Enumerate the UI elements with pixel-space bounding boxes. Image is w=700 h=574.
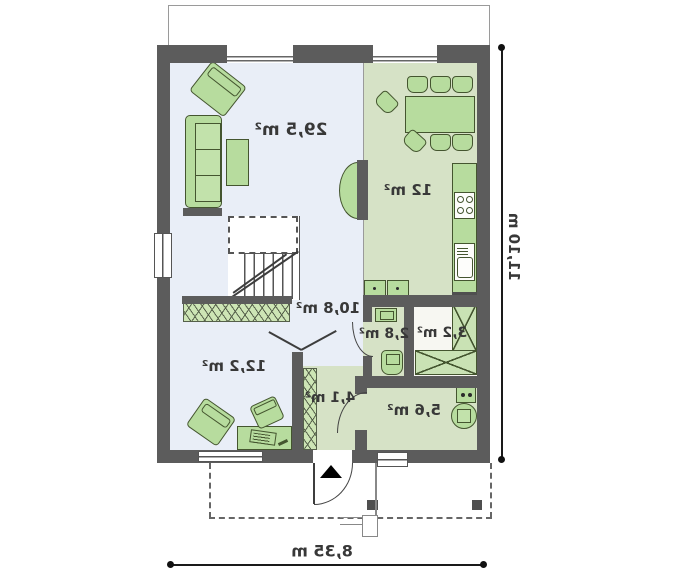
chair-symbol bbox=[430, 134, 451, 151]
glass-door bbox=[373, 46, 437, 62]
window bbox=[198, 451, 263, 462]
wall bbox=[182, 296, 292, 304]
sofa-cushion bbox=[195, 149, 221, 176]
wardrobe-hall bbox=[183, 303, 290, 322]
room-label-entry: 4,1 m² bbox=[305, 390, 355, 406]
wall bbox=[363, 295, 477, 307]
stair-treads bbox=[244, 253, 298, 299]
room-label-utility: 5,6 m² bbox=[387, 401, 441, 419]
room-label-hall: 10,8 m² bbox=[296, 299, 360, 317]
desk-symbol bbox=[237, 426, 292, 450]
room-label-pantry: 3,2 m² bbox=[417, 325, 467, 341]
room-label-living: 29,5 m² bbox=[254, 120, 327, 140]
eaves-dashed-line bbox=[209, 463, 211, 518]
porch-post bbox=[472, 500, 482, 510]
window bbox=[154, 233, 172, 278]
wall bbox=[292, 352, 303, 463]
porch-step bbox=[362, 515, 378, 537]
room-label-office: 12,2 m² bbox=[202, 357, 266, 375]
terrace-outline bbox=[168, 5, 490, 50]
sofa-cushion bbox=[195, 123, 221, 150]
dimension-endpoint bbox=[498, 44, 505, 51]
wall-stub bbox=[357, 160, 368, 220]
wall-stub bbox=[183, 208, 222, 216]
porch-edge bbox=[375, 463, 377, 516]
wall bbox=[355, 430, 367, 450]
wardrobe-entry bbox=[303, 368, 317, 450]
wall bbox=[352, 450, 490, 463]
door-leaf bbox=[313, 463, 315, 504]
wall bbox=[293, 45, 373, 63]
coffee-table-symbol bbox=[226, 139, 249, 186]
wall bbox=[363, 295, 372, 322]
boiler-symbol bbox=[451, 403, 477, 429]
utility-unit-symbol bbox=[456, 387, 476, 403]
sofa-cushion bbox=[195, 175, 221, 202]
sofa-symbol bbox=[185, 115, 222, 208]
toilet-symbol bbox=[381, 350, 403, 375]
entrance-arrow-icon bbox=[320, 465, 342, 478]
chair-symbol bbox=[452, 76, 473, 93]
stove-symbol bbox=[454, 192, 475, 219]
chair-symbol bbox=[430, 76, 451, 93]
glass-door bbox=[227, 46, 293, 62]
wall bbox=[477, 45, 490, 463]
porch-paving-edge bbox=[340, 517, 362, 525]
dimension-label-width: 8,35 m bbox=[291, 542, 353, 561]
hall-cabinet-symbol bbox=[387, 280, 409, 296]
wall bbox=[404, 307, 414, 386]
eaves-dashed-line bbox=[490, 463, 492, 518]
chair-symbol bbox=[407, 76, 428, 93]
wall bbox=[355, 376, 477, 388]
wc-sink-symbol bbox=[375, 308, 397, 322]
kitchen-sink-symbol bbox=[454, 243, 475, 281]
hall-cabinet-symbol bbox=[364, 280, 386, 296]
window bbox=[377, 452, 408, 467]
dimension-line-vertical bbox=[501, 47, 503, 460]
dimension-endpoint bbox=[498, 456, 505, 463]
stair-landing-dashed bbox=[228, 216, 298, 254]
dimension-endpoint bbox=[480, 561, 487, 568]
dimension-label-depth: 11,10 m bbox=[505, 213, 523, 281]
dimension-endpoint bbox=[167, 561, 174, 568]
chair-symbol bbox=[452, 134, 473, 151]
floor-plan: 29,5 m² 12 m² 10,8 m² 12,2 m² 2,8 m² 3,2… bbox=[0, 0, 700, 574]
dining-table-symbol bbox=[405, 96, 475, 133]
room-label-wc: 2,8 m² bbox=[359, 326, 409, 342]
room-label-kitchen: 12 m² bbox=[384, 181, 432, 199]
storage-shelf-symbol bbox=[415, 350, 477, 375]
dimension-line-horizontal bbox=[170, 564, 483, 566]
